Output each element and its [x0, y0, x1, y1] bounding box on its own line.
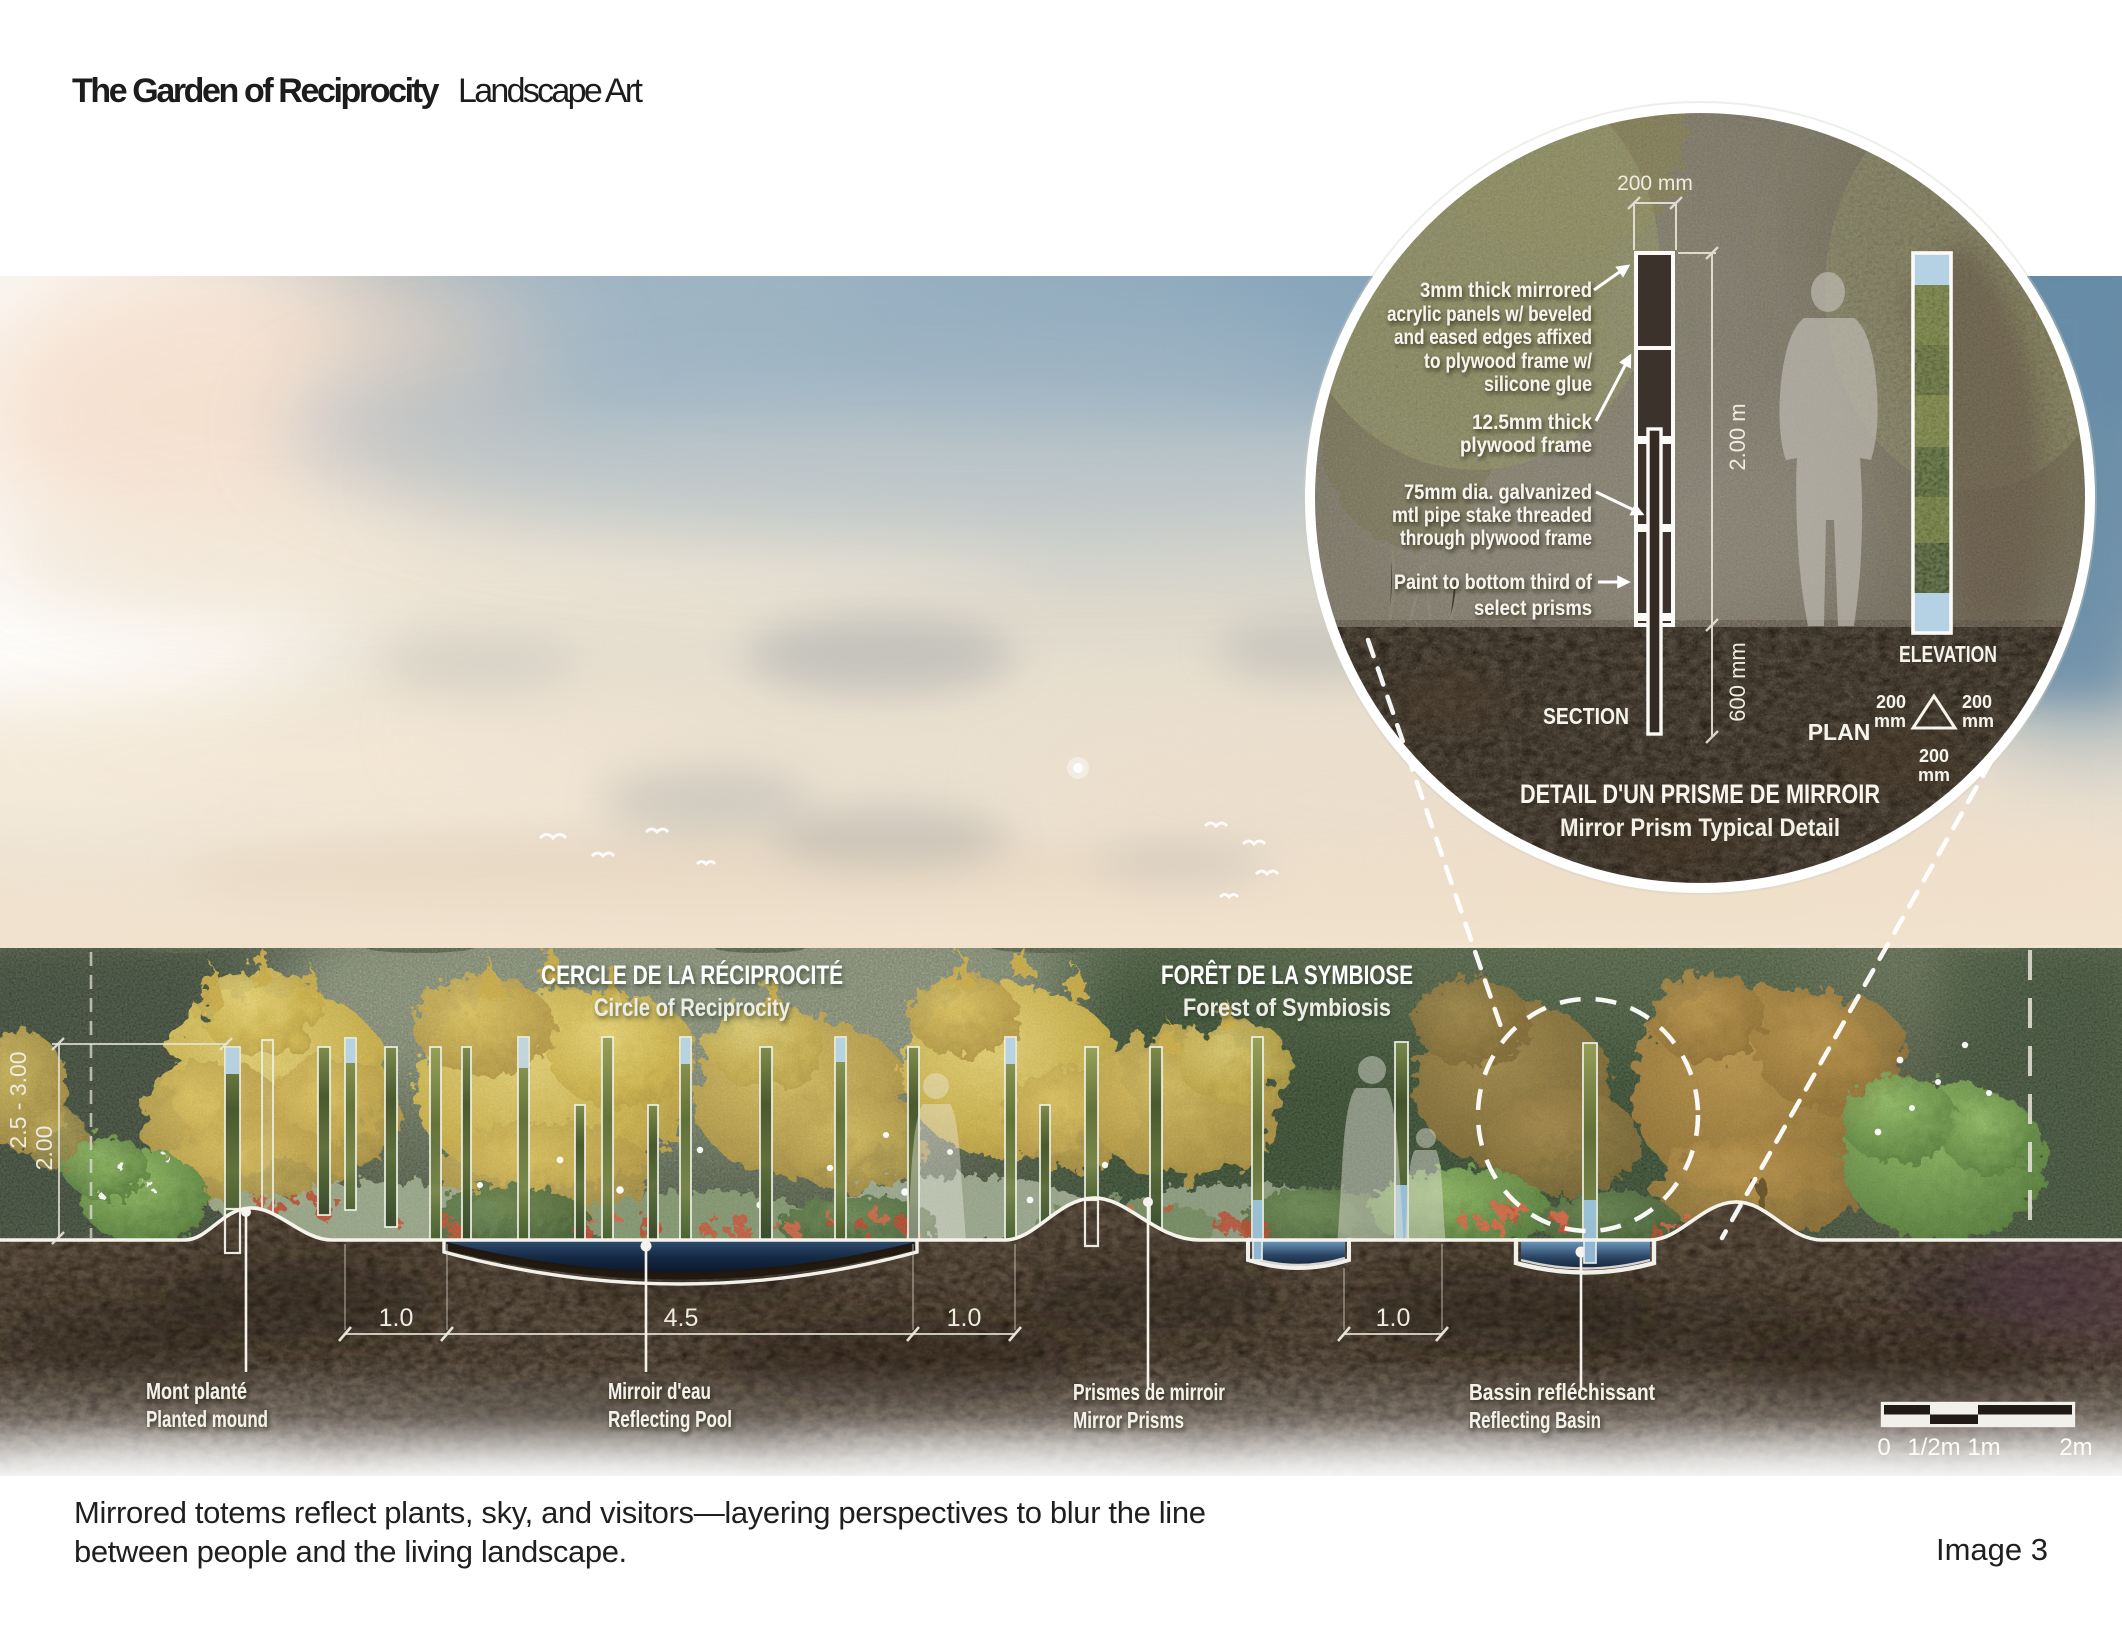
svg-text:mtl pipe stake threaded: mtl pipe stake threaded	[1392, 504, 1592, 527]
svg-text:200 mm: 200 mm	[1617, 172, 1693, 195]
svg-text:silicone glue: silicone glue	[1484, 373, 1592, 396]
svg-text:12.5mm thick: 12.5mm thick	[1472, 411, 1592, 434]
svg-text:Forest of Symbiosis: Forest of Symbiosis	[1183, 994, 1391, 1022]
svg-text:through plywood frame: through plywood frame	[1400, 527, 1592, 550]
svg-text:select prisms: select prisms	[1474, 597, 1592, 620]
svg-text:75mm dia. galvanized: 75mm dia. galvanized	[1404, 481, 1592, 504]
svg-text:SECTION: SECTION	[1543, 703, 1629, 729]
svg-text:200: 200	[1919, 746, 1949, 766]
svg-text:PLAN: PLAN	[1808, 719, 1871, 745]
svg-text:and eased edges affixed: and eased edges affixed	[1394, 326, 1592, 349]
svg-text:Image 3: Image 3	[1936, 1532, 2048, 1567]
svg-text:600 mm: 600 mm	[1725, 642, 1750, 721]
svg-text:Prismes de mirroir: Prismes de mirroir	[1073, 1379, 1225, 1405]
svg-text:200: 200	[1962, 692, 1992, 712]
svg-text:Reflecting Basin: Reflecting Basin	[1469, 1407, 1601, 1433]
svg-text:1.0: 1.0	[379, 1304, 414, 1332]
svg-text:1.0: 1.0	[947, 1304, 982, 1332]
svg-text:2.00 m: 2.00 m	[1725, 403, 1750, 470]
svg-text:0: 0	[1877, 1434, 1890, 1461]
svg-text:The Garden of Reciprocity: The Garden of Reciprocity	[72, 72, 440, 110]
svg-text:Reflecting Pool: Reflecting Pool	[608, 1406, 732, 1432]
svg-text:Mirror Prism Typical Detail: Mirror Prism Typical Detail	[1560, 814, 1840, 842]
svg-text:2.00: 2.00	[31, 1126, 57, 1171]
svg-text:to plywood frame w/: to plywood frame w/	[1424, 350, 1592, 373]
svg-text:ELEVATION: ELEVATION	[1899, 641, 1997, 667]
svg-text:3mm thick mirrored: 3mm thick mirrored	[1420, 279, 1592, 302]
svg-text:Mirroir d'eau: Mirroir d'eau	[608, 1378, 711, 1404]
svg-text:1.0: 1.0	[1376, 1304, 1411, 1332]
svg-text:Bassin refléchissant: Bassin refléchissant	[1469, 1379, 1655, 1405]
svg-text:mm: mm	[1874, 711, 1906, 731]
svg-text:FORÊT DE LA SYMBIOSE: FORÊT DE LA SYMBIOSE	[1161, 959, 1413, 990]
svg-text:Circle of Reciprocity: Circle of Reciprocity	[594, 994, 790, 1022]
svg-text:Mirror Prisms: Mirror Prisms	[1073, 1407, 1184, 1433]
svg-text:4.5: 4.5	[664, 1304, 699, 1332]
svg-text:acrylic panels w/ beveled: acrylic panels w/ beveled	[1387, 303, 1592, 326]
svg-text:mm: mm	[1918, 765, 1950, 785]
svg-text:Mont planté: Mont planté	[146, 1378, 247, 1404]
svg-text:CERCLE DE LA RÉCIPROCITÉ: CERCLE DE LA RÉCIPROCITÉ	[541, 959, 843, 990]
svg-text:Planted mound: Planted mound	[146, 1406, 268, 1432]
svg-text:1m: 1m	[1967, 1434, 2000, 1461]
svg-text:1/2m: 1/2m	[1907, 1434, 1960, 1461]
svg-text:2m: 2m	[2059, 1434, 2092, 1461]
svg-text:Mirrored totems reflect plants: Mirrored totems reflect plants, sky, and…	[74, 1495, 1206, 1530]
svg-text:mm: mm	[1962, 711, 1994, 731]
svg-text:Paint to bottom third of: Paint to bottom third of	[1394, 571, 1593, 594]
svg-text:plywood frame: plywood frame	[1460, 434, 1592, 457]
svg-text:between people and the living: between people and the living landscape.	[74, 1534, 627, 1569]
svg-text:200: 200	[1876, 692, 1906, 712]
svg-text:Landscape Art: Landscape Art	[458, 72, 644, 110]
svg-text:DETAIL D'UN PRISME DE MIRROIR: DETAIL D'UN PRISME DE MIRROIR	[1520, 779, 1880, 809]
svg-text:2.5 - 3.00: 2.5 - 3.00	[5, 1051, 31, 1148]
